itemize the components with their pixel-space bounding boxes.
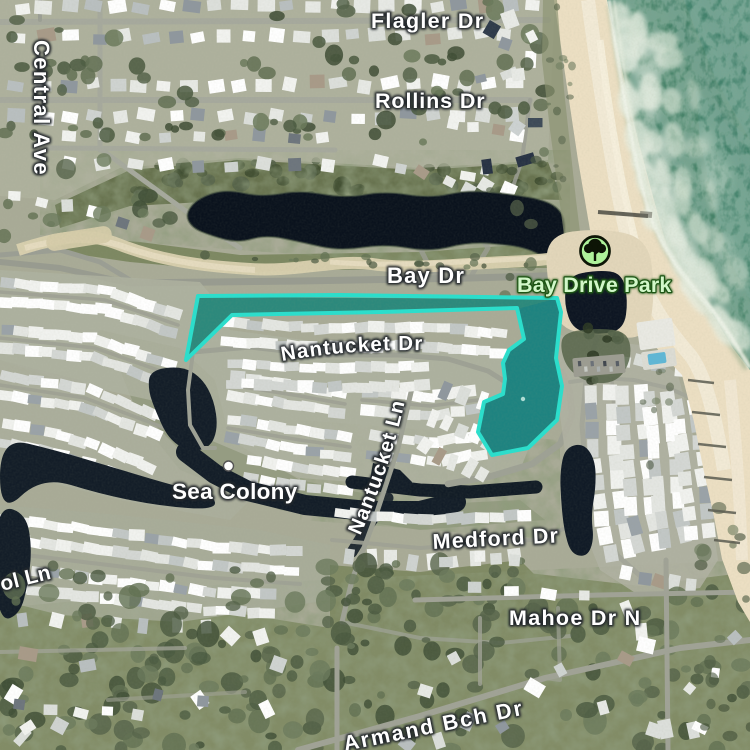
svg-text:Bay Dr: Bay Dr bbox=[387, 263, 465, 288]
svg-text:Sea Colony: Sea Colony bbox=[172, 479, 298, 504]
svg-text:Mahoe Dr N: Mahoe Dr N bbox=[509, 606, 641, 630]
svg-text:Rollins Dr: Rollins Dr bbox=[375, 89, 486, 113]
svg-text:Bay Drive Park: Bay Drive Park bbox=[517, 273, 672, 297]
svg-text:Flagler Dr: Flagler Dr bbox=[371, 9, 484, 33]
svg-text:Central Ave: Central Ave bbox=[29, 40, 54, 176]
